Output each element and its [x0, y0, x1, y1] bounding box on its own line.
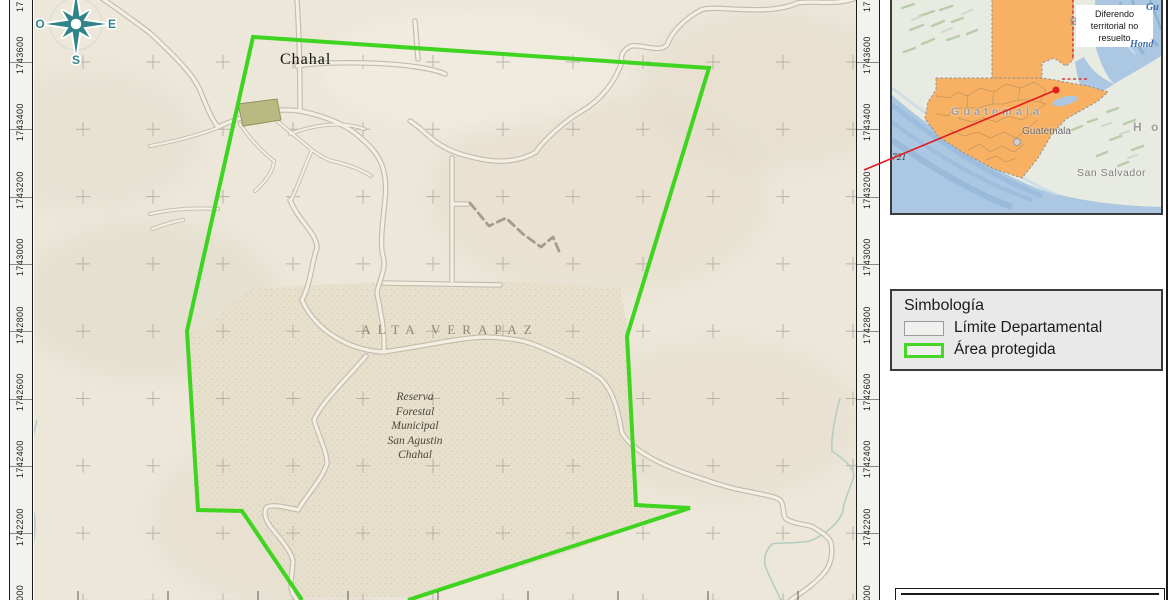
honduras-partial-label: H o — [1133, 120, 1161, 134]
legend-item: Área protegida — [904, 341, 1149, 359]
grid-cross — [636, 526, 650, 540]
grid-cross — [706, 526, 720, 540]
axis-label: 1743200 — [860, 166, 874, 214]
grid-cross — [146, 459, 160, 473]
scale-box-partial — [895, 588, 1165, 600]
grid-cross — [706, 324, 720, 338]
grid-cross — [846, 526, 856, 540]
grid-cross — [776, 257, 790, 271]
axis-label: 1743600 — [860, 31, 874, 79]
grid-cross — [846, 324, 856, 338]
y-axis-bar-right: 1743600174340017432001743000174280017426… — [856, 0, 880, 600]
san-salvador-label: San Salvador — [1077, 167, 1146, 179]
axis-label: 1743400 — [860, 98, 874, 146]
main-map-canvas: O E S — [34, 0, 856, 600]
axis-label: 1742800 — [13, 301, 27, 349]
reserve-label-line: Reserva — [335, 390, 495, 405]
axis-label-partial: 17 — [860, 0, 874, 20]
capital-city-dot — [1014, 139, 1021, 146]
grid-cross — [846, 257, 856, 271]
legend-swatch — [904, 321, 944, 336]
axis-label: 1742400 — [860, 435, 874, 483]
grid-cross — [356, 257, 370, 271]
grid-cross — [356, 190, 370, 204]
compass-hub — [70, 18, 83, 31]
reserve-label-line: San Agustin — [335, 434, 495, 449]
reserve-label-line: Chahal — [335, 448, 495, 463]
axis-label: 1743200 — [13, 166, 27, 214]
grid-cross — [426, 257, 440, 271]
compass-west-label: O — [35, 17, 44, 31]
department-label: ALTA VERAPAZ — [300, 322, 600, 338]
legend-title: Simbología — [904, 297, 1149, 315]
town-building — [238, 99, 281, 126]
axis-label: 1742800 — [860, 301, 874, 349]
axis-label: 1742200 — [13, 503, 27, 551]
legend-item-label: Área protegida — [954, 341, 1056, 359]
reserve-label-line: Forestal — [335, 405, 495, 420]
axis-label: 1743000 — [860, 233, 874, 281]
axis-label: 1743600 — [13, 31, 27, 79]
axis-label-partial: 000 — [860, 580, 874, 600]
grid-cross — [566, 593, 580, 600]
compass-east-label: E — [108, 17, 116, 31]
grid-cross — [776, 526, 790, 540]
grid-cross — [636, 324, 650, 338]
grid-cross — [146, 55, 160, 69]
grid-cross — [76, 392, 90, 406]
legend-swatch — [904, 343, 944, 358]
axis-label: 1742600 — [860, 368, 874, 416]
sea-label-fragment: Hond — [1130, 39, 1153, 50]
legend-item-label: Límite Departamental — [954, 319, 1102, 337]
legend-items: Límite DepartamentalÁrea protegida — [904, 319, 1149, 359]
legend-item: Límite Departamental — [904, 319, 1149, 337]
y-axis-bar-left: 1743600174340017432001743000174280017426… — [9, 0, 33, 600]
compass-rose: O E S — [35, 0, 116, 67]
depth-label: 721 — [892, 153, 906, 163]
axis-label: 1742400 — [13, 435, 27, 483]
grid-cross — [846, 459, 856, 473]
grid-cross — [636, 593, 650, 600]
map-layout-page: O E S Chahal ALTA VERAPAZ ReservaForesta… — [0, 0, 1170, 600]
reserve-label-line: Municipal — [335, 419, 495, 434]
axis-label-partial: 17 — [13, 0, 27, 20]
grid-cross — [216, 55, 230, 69]
grid-cross — [146, 392, 160, 406]
grid-cross — [76, 526, 90, 540]
grid-cross — [846, 190, 856, 204]
reserve-name-label: ReservaForestalMunicipalSan AgustinChaha… — [335, 390, 495, 463]
grid-cross — [496, 593, 510, 600]
bottom-grid-ticks — [78, 591, 798, 600]
axis-label: 1743000 — [13, 233, 27, 281]
compass-south-label: S — [72, 53, 80, 67]
axis-label: 1742200 — [860, 503, 874, 551]
grid-cross — [776, 190, 790, 204]
capital-city-label: Guatemala — [1022, 126, 1071, 137]
main-map: O E S Chahal ALTA VERAPAZ ReservaForesta… — [34, 0, 856, 600]
scale-box-inner-frame — [901, 593, 1159, 600]
country-label: Guatemala — [930, 106, 1064, 118]
grid-cross — [776, 324, 790, 338]
grid-cross — [286, 257, 300, 271]
grid-cross — [76, 459, 90, 473]
axis-label: 1743400 — [13, 98, 27, 146]
sea-label-fragment-top: Gu — [1146, 2, 1159, 13]
grid-cross — [846, 593, 856, 600]
axis-label: 1742600 — [13, 368, 27, 416]
page-frame-right — [1166, 0, 1168, 600]
legend-panel: Simbología Límite DepartamentalÁrea prot… — [890, 289, 1163, 371]
grid-cross — [146, 593, 160, 600]
axis-label-partial: 000 — [13, 580, 27, 600]
town-label: Chahal — [280, 51, 331, 69]
